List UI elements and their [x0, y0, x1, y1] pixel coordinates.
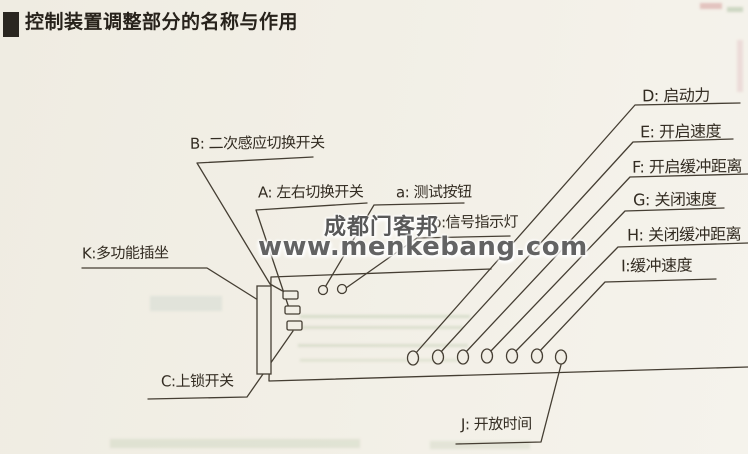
switch-A-left-right	[285, 306, 300, 314]
bleed-smudge	[110, 439, 360, 448]
watermark-url-text: www.menkebang.com	[258, 232, 588, 262]
bleed-smudge	[727, 7, 743, 12]
bleed-smudge	[150, 296, 222, 311]
signal-lamp-b	[338, 285, 347, 294]
callout-label-F: F: 开启缓冲距离	[632, 152, 742, 177]
callout-label-E: E: 开启速度	[640, 118, 721, 143]
dial-J-hold-time	[556, 350, 567, 364]
switch-C-lock	[287, 321, 302, 330]
leader-line-I	[538, 279, 716, 353]
page-title: 控制装置调整部分的名称与作用	[25, 7, 298, 34]
test-button-a	[319, 286, 328, 295]
callout-label-b: b:信号指示灯	[432, 211, 518, 233]
callout-label-B: B: 二次感应切换开关	[190, 131, 325, 153]
leader-line-K	[82, 268, 258, 300]
callout-label-I: I:缓冲速度	[621, 252, 692, 277]
callout-label-G: G: 关闭速度	[633, 186, 717, 211]
dial-F-open-buffer	[458, 350, 469, 364]
bleed-smudge	[700, 3, 722, 9]
heading-bullet-square	[3, 12, 19, 37]
dial-H-close-buffer	[507, 349, 518, 363]
dial-G-close-speed	[482, 349, 493, 363]
callout-label-C: C:上锁开关	[161, 370, 234, 392]
bleed-line	[300, 315, 470, 318]
callout-label-A: A: 左右切换开关	[258, 180, 364, 202]
callout-label-J: J: 开放时间	[461, 413, 532, 435]
callout-label-H: H: 关闭缓冲距离	[627, 220, 741, 245]
callout-label-K: K:多功能插坐	[82, 242, 169, 264]
dial-E-open-speed	[433, 350, 444, 364]
bleed-smudge	[737, 40, 743, 92]
dial-D-start-force	[408, 351, 419, 365]
scanned-manual-page: 控制装置调整部分的名称与作用 B: 二次感应切换开关 A: 左右切换开关 a: …	[0, 0, 748, 454]
bleed-line	[298, 344, 468, 347]
dial-I-buffer-speed	[532, 349, 543, 363]
callout-label-a: a: 测试按钮	[396, 181, 472, 203]
section-heading: 控制装置调整部分的名称与作用	[3, 7, 298, 37]
leader-line-B	[197, 157, 313, 294]
switch-B-secondary-sensor	[283, 291, 298, 299]
callout-label-D: D: 启动力	[642, 82, 710, 107]
multi-socket-K	[257, 286, 271, 374]
